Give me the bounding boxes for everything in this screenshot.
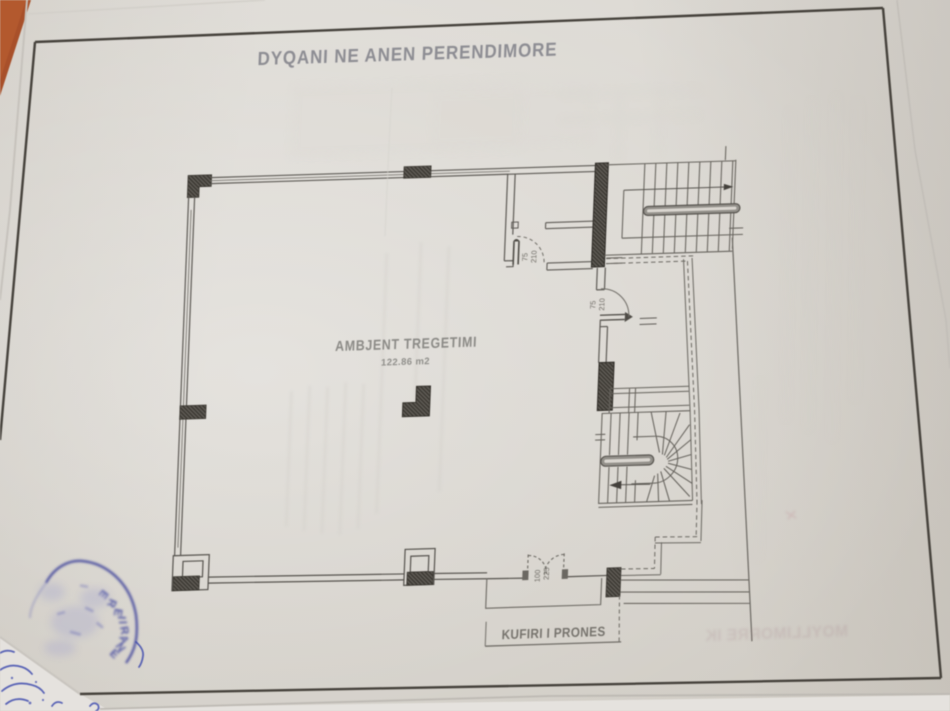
svg-text:KUFIRI I PRONES: KUFIRI I PRONES: [501, 624, 606, 642]
svg-text:I: I: [116, 621, 128, 625]
svg-text:AMBJENT TREGETIMI: AMBJENT TREGETIMI: [335, 335, 478, 355]
svg-text:122.86 m2: 122.86 m2: [381, 356, 430, 369]
svg-text:75210: 75210: [520, 250, 538, 263]
svg-text:100225: 100225: [533, 567, 552, 582]
svg-text:75210: 75210: [588, 298, 606, 311]
svg-text:MOYLLIMORRE IK: MOYLLIMORRE IK: [705, 623, 848, 645]
svg-text:DYQANI NE ANEN PERENDIMORE: DYQANI NE ANEN PERENDIMORE: [257, 40, 558, 70]
svg-text:I: I: [115, 616, 127, 620]
